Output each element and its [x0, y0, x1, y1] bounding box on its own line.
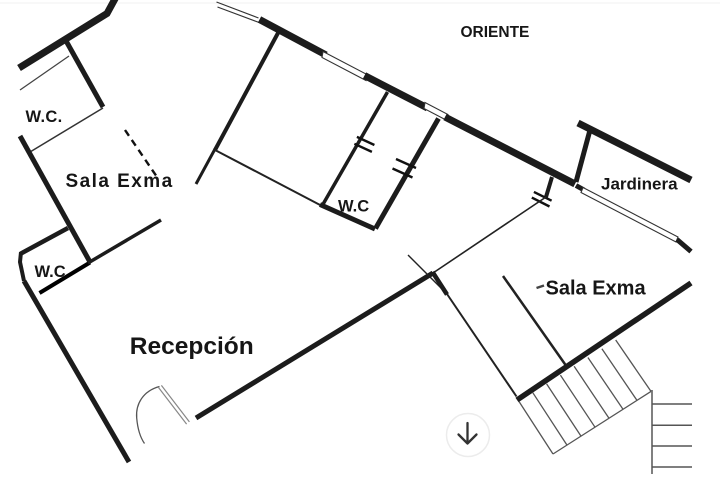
- svg-text:W.C: W.C: [338, 198, 369, 216]
- svg-text:W.C.: W.C.: [26, 108, 63, 126]
- svg-text:ORIENTE: ORIENTE: [461, 24, 530, 41]
- svg-text:W.C: W.C: [35, 263, 66, 281]
- svg-text:Recepción: Recepción: [130, 333, 254, 360]
- svg-text:Sala Exma: Sala Exma: [66, 171, 174, 192]
- svg-text:Jardinera: Jardinera: [601, 175, 678, 194]
- svg-text:Sala Exma: Sala Exma: [546, 278, 647, 300]
